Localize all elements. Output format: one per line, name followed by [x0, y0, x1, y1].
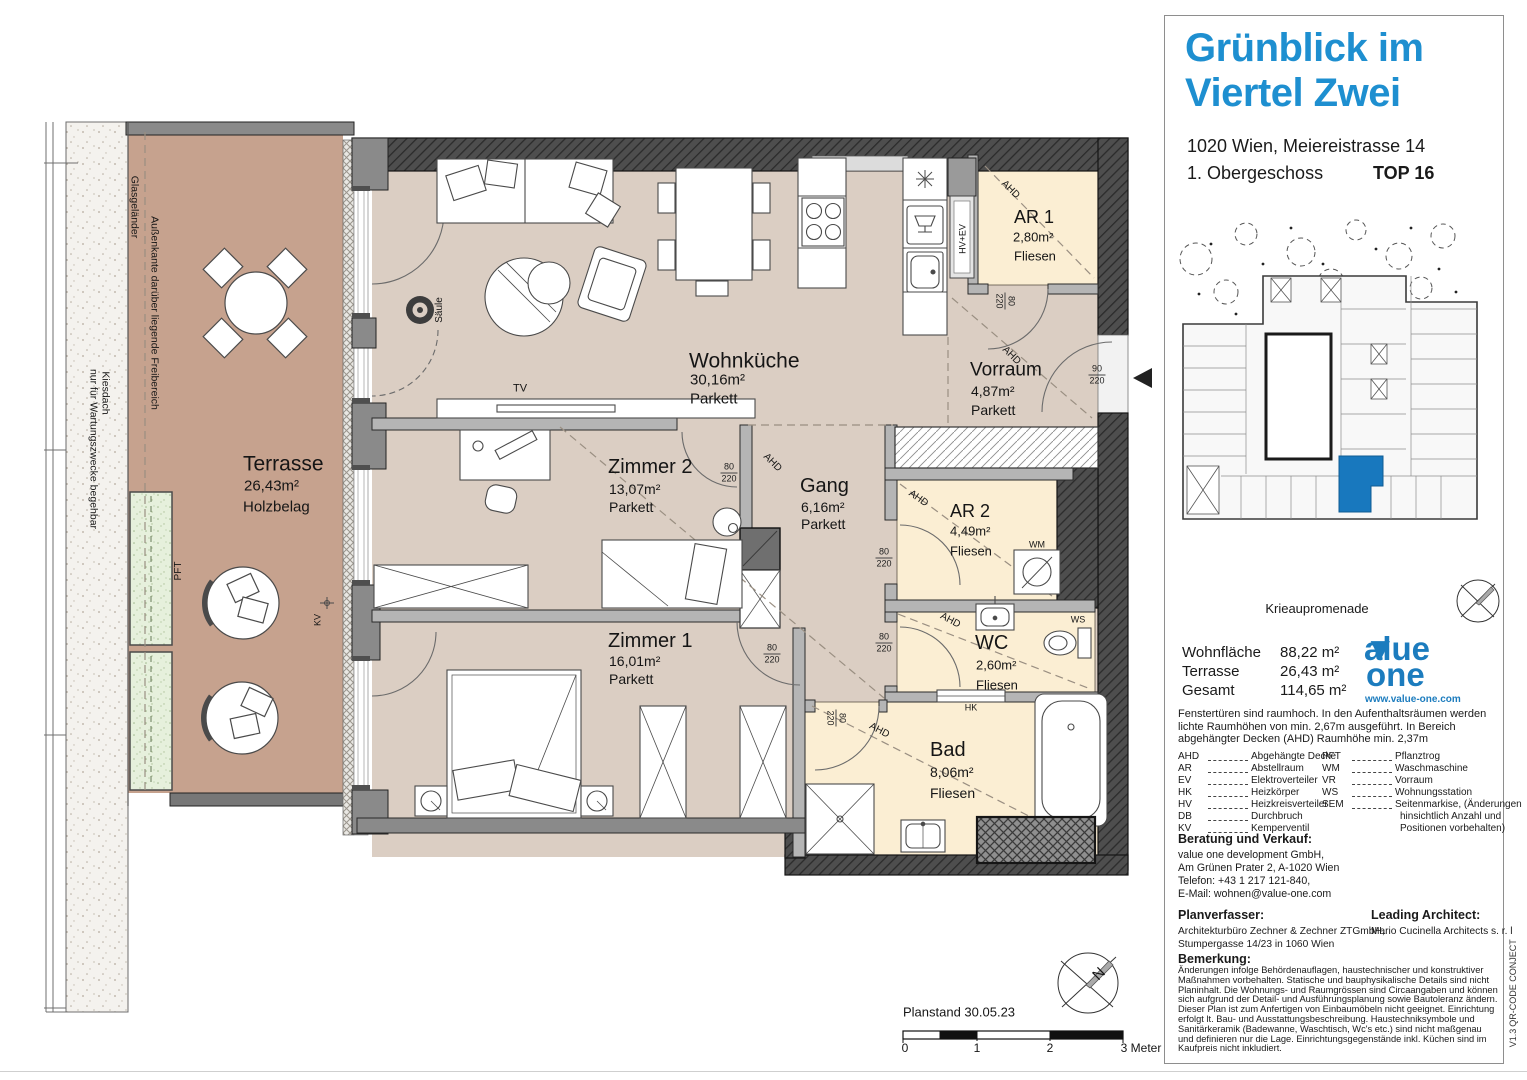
- remark-text: Änderungen infolge Behördenauflagen, hau…: [1178, 966, 1498, 1054]
- architect-line: Mario Cucinella Architects s. r. l: [1371, 925, 1513, 938]
- unit-number: TOP 16: [1373, 163, 1434, 184]
- legend-item: SEMSeitenmarkise, (Änderungen: [1322, 800, 1472, 810]
- legend-continuation: Positionen vorbehalten): [1400, 824, 1505, 834]
- north-compass: [1058, 953, 1118, 1013]
- legend-item: HVHeizkreisverteiler: [1178, 800, 1328, 810]
- contact-line: Am Grünen Prater 2, A-1020 Wien: [1178, 862, 1339, 875]
- contact-email[interactable]: E-Mail: wohnen@value-one.com: [1178, 888, 1331, 901]
- cooktop-star-icon: [916, 170, 934, 188]
- scale-bar: [903, 1031, 1123, 1043]
- area-table: Wohnfläche 88,22 m² Terrasse 26,43 m² Ge…: [1182, 644, 1382, 714]
- logo-url[interactable]: www.value-one.com: [1365, 694, 1461, 705]
- dishwasher-icon: [907, 206, 943, 244]
- logo-word-one: one: [1366, 660, 1425, 690]
- entrance-arrow-icon: [1133, 368, 1152, 388]
- table-row: Wohnfläche 88,22 m²: [1182, 644, 1382, 663]
- promenade-label: Krieaupromenade: [1265, 601, 1368, 616]
- architect-heading: Leading Architect:: [1371, 908, 1480, 922]
- legend-item: HKHeizkörper: [1178, 788, 1328, 798]
- planner-heading: Planverfasser:: [1178, 908, 1264, 922]
- legend-item: VRVorraum: [1322, 776, 1472, 786]
- version-label: V1.3: [1508, 1029, 1518, 1048]
- legend-continuation: hinsichtlich Anzahl und: [1400, 812, 1501, 822]
- wardrobe-niche: [895, 427, 1098, 468]
- planner-line: Architekturbüro Zechner & Zechner ZTGmbH…: [1178, 925, 1385, 938]
- abbreviation-legend: AHDAbgehängte Decke ARAbstellraum EVElek…: [1178, 752, 1498, 838]
- toilet-tank-icon: [1078, 628, 1091, 658]
- table-row: Terrasse 26,43 m²: [1182, 663, 1382, 682]
- contact-line: Telefon: +43 1 217 121-840,: [1178, 875, 1310, 888]
- planter-boxes: [130, 492, 172, 790]
- legend-item: ARAbstellraum: [1178, 764, 1328, 774]
- sidebar-compass-icon: [1455, 578, 1501, 624]
- shaft-crosshatch-box: [977, 817, 1095, 863]
- legend-item: EVElektroverteiler: [1178, 776, 1328, 786]
- project-address: 1020 Wien, Meiereistrasse 14: [1187, 136, 1425, 157]
- legend-item: WSWohnungsstation: [1322, 788, 1472, 798]
- value-one-logo: ▼alue one www.value-one.com: [1364, 634, 1494, 714]
- legend-item: WMWaschmaschine: [1322, 764, 1472, 774]
- ceiling-note: Fenstertüren sind raumhoch. In den Aufen…: [1178, 708, 1493, 746]
- legend-item: PFTPflanztrog: [1322, 752, 1472, 762]
- legend-item: DBDurchbruch: [1178, 812, 1328, 822]
- legend-item: AHDAbgehängte Decke: [1178, 752, 1328, 762]
- column-saeule: [406, 296, 434, 324]
- contact-line: value one development GmbH,: [1178, 849, 1324, 862]
- site-plan: [1171, 214, 1497, 536]
- bathtub-icon: [1035, 694, 1107, 826]
- info-panel: Grünblick im Viertel Zwei 1020 Wien, Mei…: [1164, 15, 1504, 1064]
- floorplan-drawing: [0, 0, 1160, 1080]
- floor-label: 1. Obergeschoss: [1187, 163, 1323, 184]
- qr-code-label: QR-CODE CONJECT: [1508, 939, 1518, 1027]
- contact-heading: Beratung und Verkauf:: [1178, 832, 1312, 846]
- table-row: Gesamt 114,65 m²: [1182, 682, 1382, 701]
- shaft-boxes: [740, 528, 780, 628]
- floorplan-sheet: Terrasse26,43m²HolzbelagWohnküche30,16m²…: [0, 0, 1527, 1080]
- planner-line: Stumpergasse 14/23 in 1060 Wien: [1178, 938, 1334, 951]
- page-bottom-rule: [0, 1071, 1527, 1072]
- hv-ev-shaft: [948, 158, 976, 278]
- remark-heading: Bemerkung:: [1178, 952, 1251, 966]
